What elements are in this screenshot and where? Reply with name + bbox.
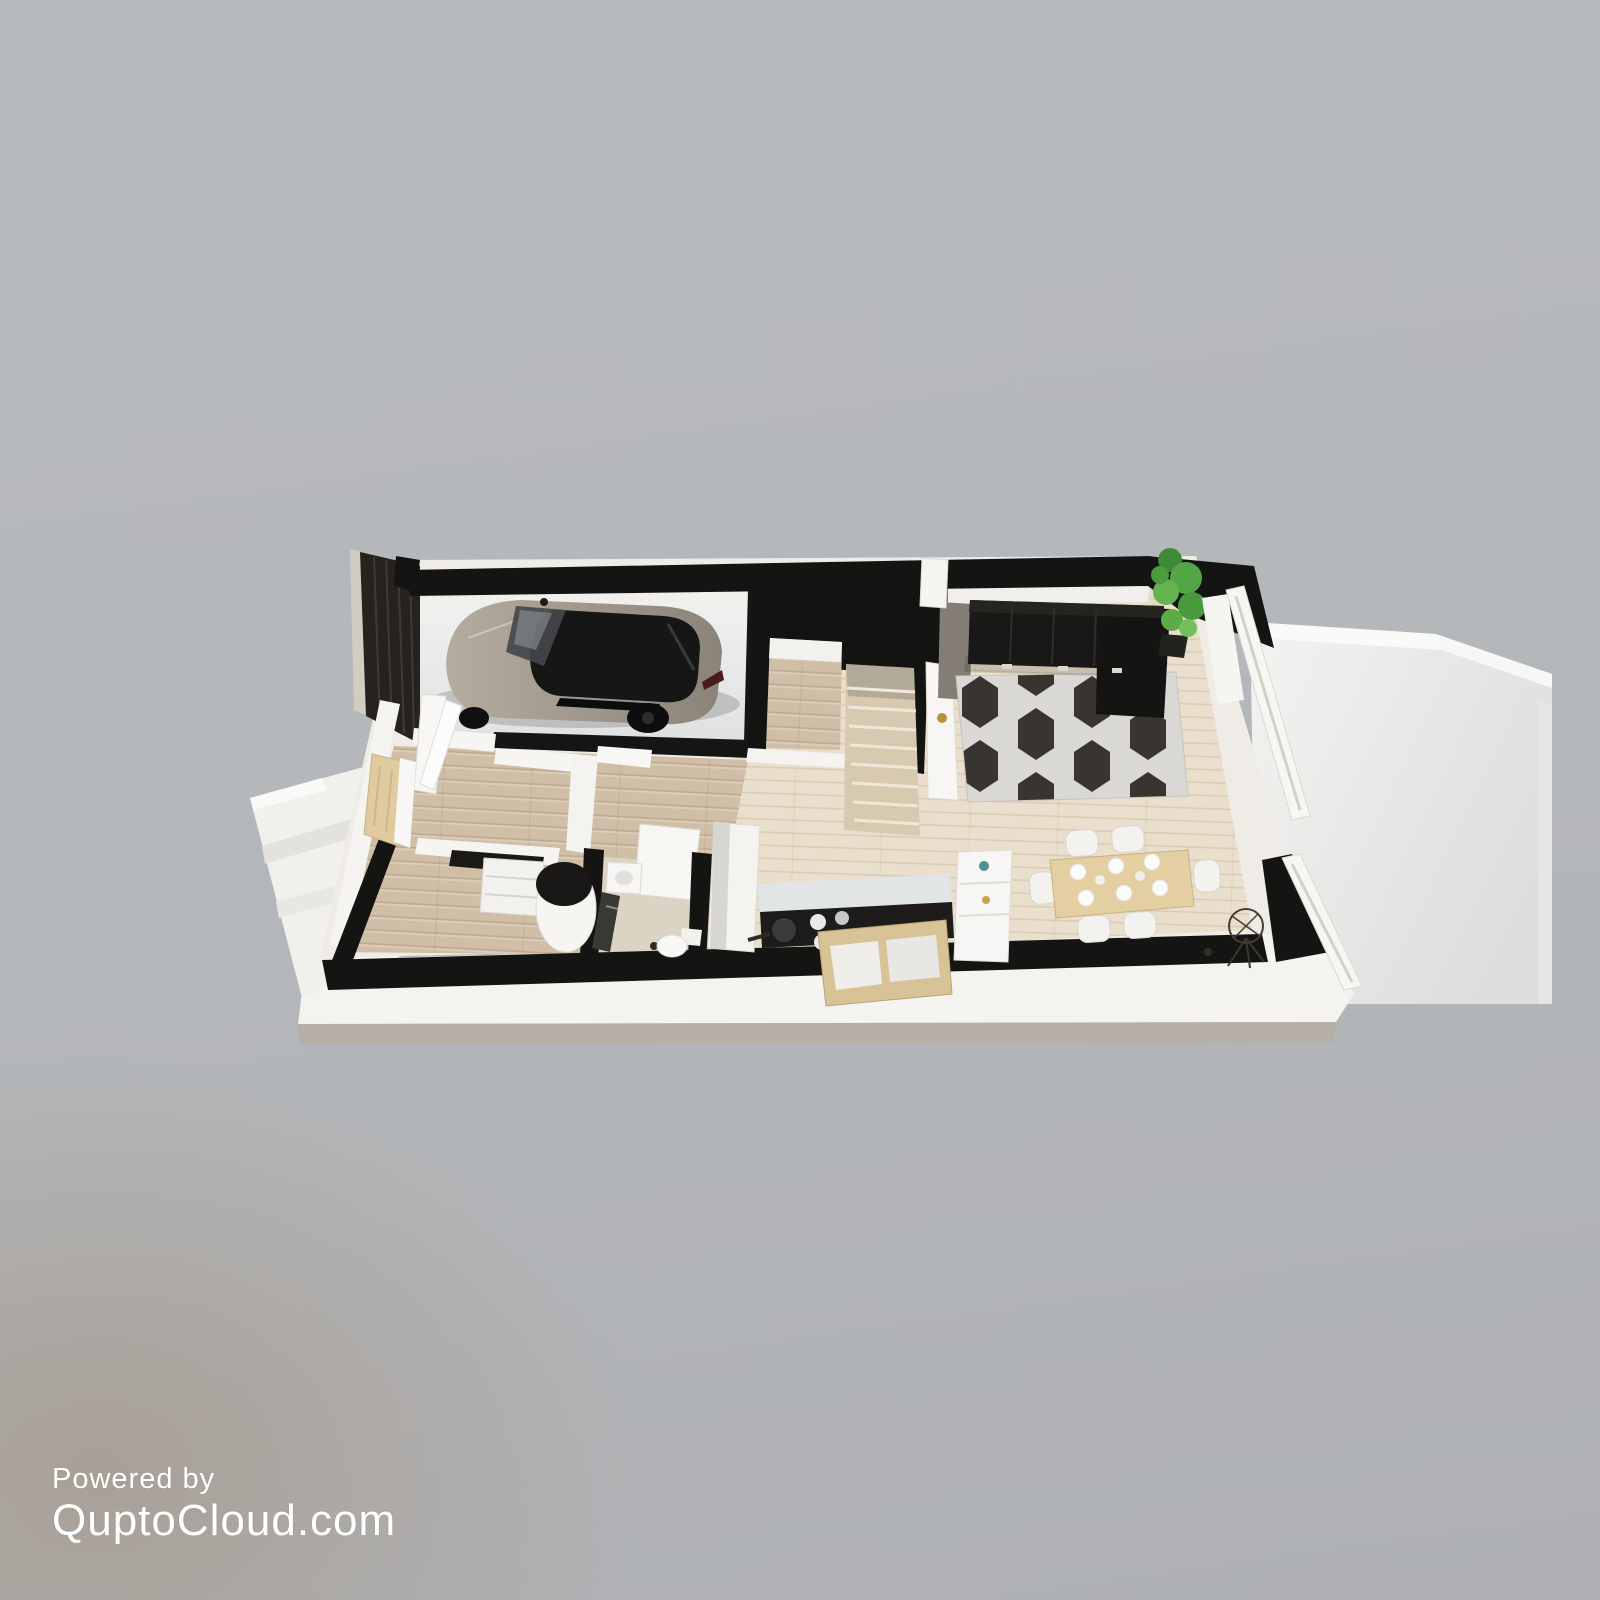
sofa-leg-3 [1112, 668, 1122, 673]
stairs-upper-shade [846, 664, 916, 700]
dining-plate-6 [1152, 880, 1168, 896]
car-wheel-front [459, 707, 489, 729]
plant-leaf-4 [1178, 592, 1206, 620]
dining-chair-bottom-2 [1123, 911, 1157, 939]
plant-pot [1158, 634, 1188, 658]
patio-step-edge-right [1538, 700, 1552, 1004]
wall-left-upper-black [394, 556, 420, 592]
kitchen-window-pane-left [830, 941, 882, 990]
closet-back-wall [769, 638, 842, 662]
toilet-bowl [657, 935, 687, 957]
plant-leaf-6 [1179, 619, 1197, 637]
kitchen-burner-3 [835, 911, 849, 925]
watermark-powered-by: Powered by [52, 1462, 396, 1496]
dining-chair-top-1 [1065, 829, 1099, 857]
dining-chair-bottom-1 [1077, 915, 1111, 943]
kitchen-pan [771, 917, 797, 943]
watermark: Powered by QuptoCloud.com [52, 1462, 396, 1546]
dining-bowl-2 [1135, 871, 1145, 881]
utility-shelf-unit [480, 858, 544, 916]
sofa-leg-2 [1058, 666, 1068, 671]
sofa-chaise [1096, 606, 1170, 718]
floorplan-container: Powered by QuptoCloud.com [0, 0, 1600, 1600]
car-mirror [540, 598, 548, 606]
sofa-leg-1 [1002, 664, 1012, 669]
foundation-strip [298, 1022, 1336, 1044]
living-chimney-column [920, 558, 948, 608]
scene-background: { "watermark": { "line1": "Powered by", … [0, 0, 1600, 1600]
floorplan-render [0, 0, 1600, 1600]
kitchen-island-decor-2 [982, 896, 990, 904]
dining-plate-5 [1116, 885, 1132, 901]
watermark-brand: QuptoCloud.com [52, 1496, 396, 1546]
kitchen-window-pane-right [886, 935, 940, 982]
kitchen-burner-1 [810, 914, 826, 930]
dining-plate-4 [1078, 890, 1094, 906]
dining-plate-2 [1108, 858, 1124, 874]
dining-bowl-1 [1095, 875, 1105, 885]
bath-sink-basin [615, 871, 633, 885]
water-heater-top [536, 862, 592, 906]
plant-leaf-7 [1151, 566, 1169, 584]
bath-door-panel [634, 824, 700, 900]
car-wheel-rear-hub [642, 712, 654, 724]
floor-lamp-object [1204, 948, 1212, 956]
dining-plate-3 [1144, 854, 1160, 870]
dining-chair-right [1193, 859, 1221, 893]
stair-door-handle [937, 713, 947, 723]
kitchen-island-decor-1 [979, 861, 989, 871]
dining-plate-1 [1070, 864, 1086, 880]
dining-chair-top-2 [1111, 825, 1145, 853]
